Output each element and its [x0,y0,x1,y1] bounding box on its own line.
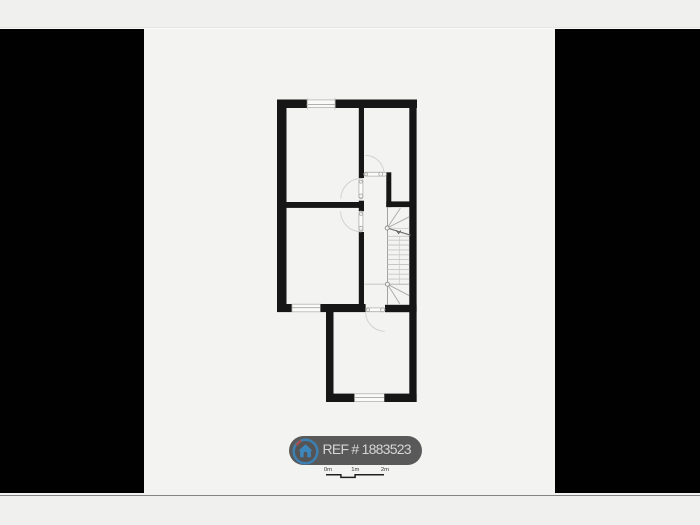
svg-text:0m: 0m [324,467,332,473]
svg-text:2m: 2m [381,467,389,473]
svg-text:1m: 1m [351,467,359,473]
